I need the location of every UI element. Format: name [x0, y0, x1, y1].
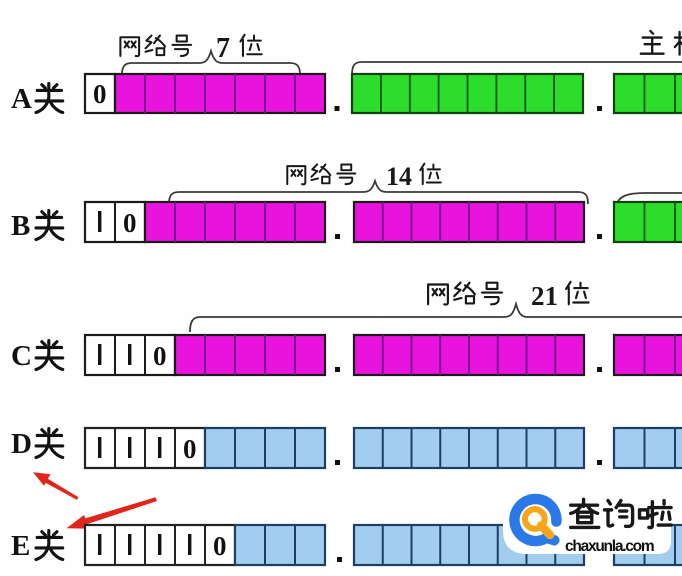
svg-text:0: 0	[213, 531, 227, 561]
svg-text:B: B	[11, 210, 30, 242]
svg-text:0: 0	[153, 341, 167, 371]
svg-text:21: 21	[531, 281, 558, 311]
svg-text:A: A	[11, 83, 32, 115]
svg-text:0: 0	[123, 208, 137, 238]
svg-text:E: E	[11, 530, 30, 562]
svg-text:7: 7	[216, 33, 230, 64]
svg-text:0: 0	[183, 434, 197, 464]
svg-text:0: 0	[93, 79, 107, 109]
svg-text:chaxunla.com: chaxunla.com	[565, 538, 654, 555]
svg-text:C: C	[11, 340, 32, 372]
svg-text:D: D	[11, 428, 32, 460]
svg-text:14: 14	[386, 162, 412, 191]
